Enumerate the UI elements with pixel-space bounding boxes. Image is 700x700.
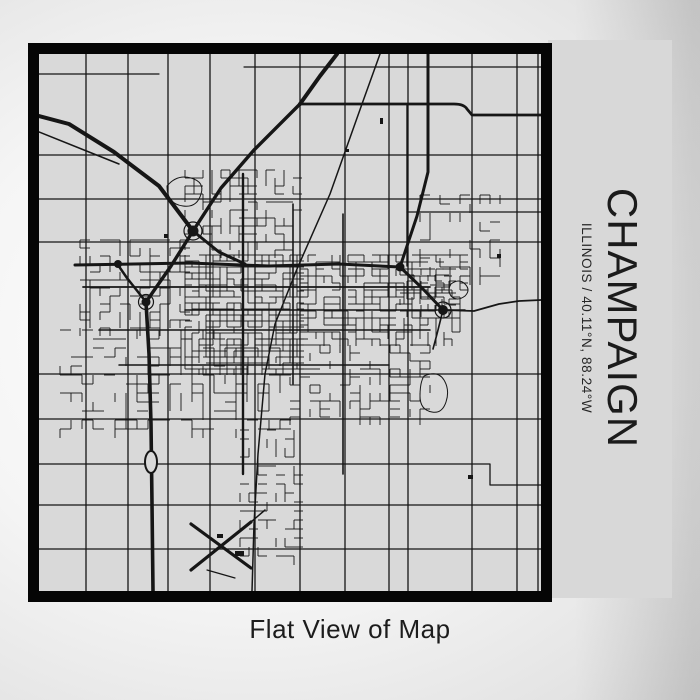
- image-caption: Flat View of Map: [0, 614, 700, 645]
- map-coordinates: ILLINOIS / 40.11°N, 88.24°W: [579, 38, 594, 598]
- map-print-flat-view[interactable]: [28, 43, 552, 602]
- street-map-render: [39, 54, 541, 591]
- map-side-label: CHAMPAIGN ILLINOIS / 40.11°N, 88.24°W: [579, 38, 643, 598]
- product-photo-background: { "poster": { "title": "CHAMPAIGN", "sub…: [0, 0, 700, 700]
- city-title: CHAMPAIGN: [601, 38, 643, 598]
